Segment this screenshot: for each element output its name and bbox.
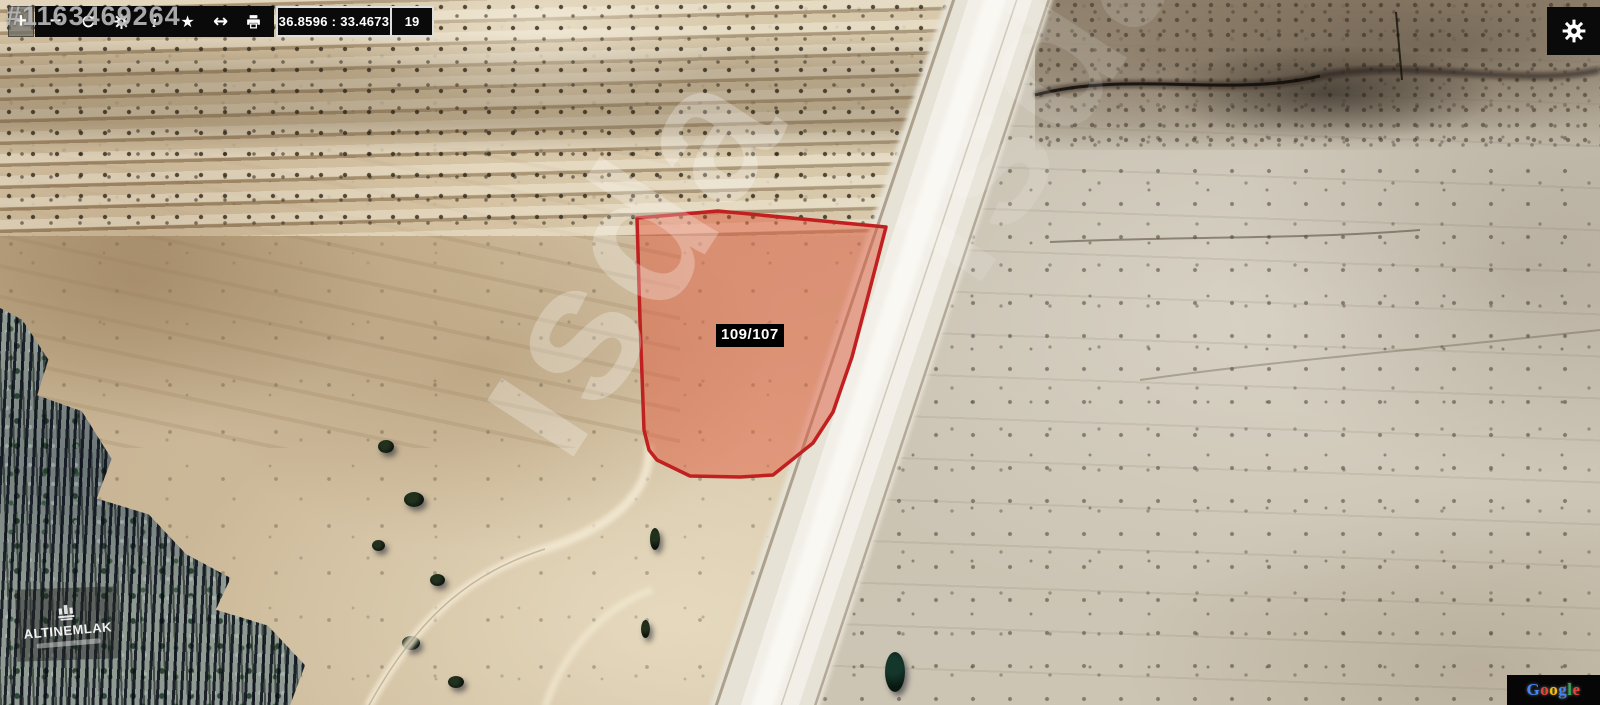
info-button[interactable]: i	[138, 6, 171, 37]
zoom-level-display: 19	[390, 8, 432, 35]
favorite-button[interactable]: ★	[171, 6, 204, 37]
brand-inner: ALTINEMLAK	[21, 599, 113, 650]
gear-icon	[113, 13, 130, 30]
coordinate-panel: 36.8596 : 33.4673 19	[276, 6, 434, 37]
refresh-icon	[80, 13, 97, 30]
toolbar: + − i ★ ↔ 36.8596 : 33.4673 19	[8, 6, 434, 37]
settings-gear-button[interactable]	[1547, 7, 1600, 55]
google-attribution: Google	[1507, 675, 1600, 705]
brand-watermark: ALTINEMLAK	[15, 586, 119, 662]
zoom-out-button[interactable]: −	[39, 6, 72, 37]
settings-button[interactable]	[105, 6, 138, 37]
parcel-layer	[0, 0, 1600, 705]
gear-icon	[1561, 18, 1587, 44]
coordinates-display: 36.8596 : 33.4673	[278, 8, 390, 35]
refresh-button[interactable]	[72, 6, 105, 37]
map-canvas[interactable]: 109/107 ısda ısda #1163469264 + − i ★ ↔ …	[0, 0, 1600, 705]
printer-icon	[245, 13, 262, 30]
brand-emblem-icon	[55, 602, 76, 622]
measure-button[interactable]: ↔	[204, 6, 237, 37]
parcel-label: 109/107	[716, 324, 784, 347]
print-button[interactable]	[237, 6, 270, 37]
google-logo: Google	[1526, 680, 1580, 700]
zoom-in-button[interactable]: +	[8, 6, 34, 37]
toolbar-icon-bar: − i ★ ↔	[35, 6, 274, 37]
